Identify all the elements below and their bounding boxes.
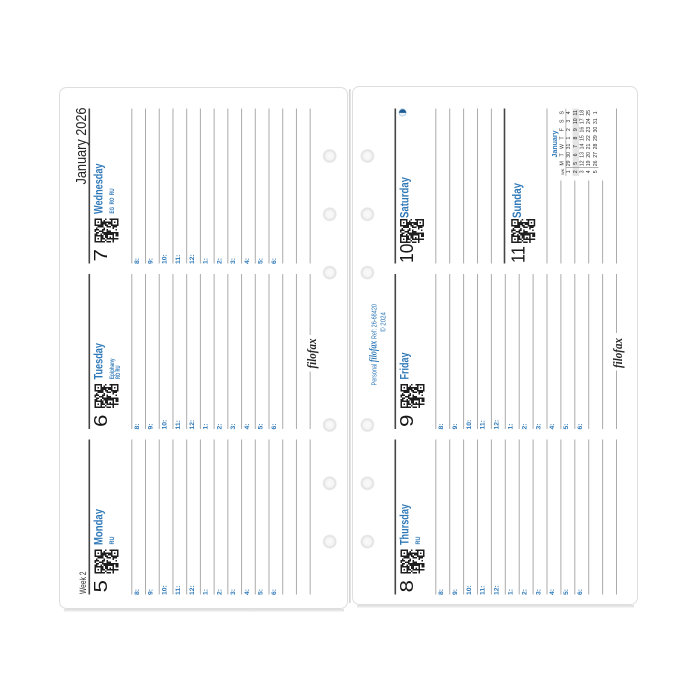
- svg-text:21: 21: [586, 143, 592, 149]
- svg-text:8:: 8:: [438, 589, 445, 595]
- svg-text:8:: 8:: [134, 258, 141, 264]
- svg-text:2:: 2:: [216, 423, 223, 429]
- svg-text:2:: 2:: [216, 589, 223, 595]
- svg-text:10:: 10:: [161, 420, 168, 430]
- svg-text:10:: 10:: [466, 420, 473, 430]
- svg-text:19: 19: [586, 160, 592, 166]
- svg-text:23: 23: [586, 127, 592, 133]
- svg-text:M: M: [559, 161, 565, 165]
- svg-text:3: 3: [580, 170, 586, 173]
- svg-text:W: W: [559, 144, 565, 149]
- svg-text:Sunday: Sunday: [510, 183, 524, 218]
- svg-text:Monday: Monday: [91, 509, 105, 545]
- svg-text:© 2024: © 2024: [380, 312, 388, 332]
- svg-text:1:: 1:: [508, 589, 515, 595]
- svg-text:11:: 11:: [175, 420, 182, 429]
- svg-text:9:: 9:: [452, 423, 459, 429]
- svg-text:4: 4: [586, 170, 592, 173]
- svg-text:24: 24: [586, 118, 592, 124]
- svg-text:9:: 9:: [148, 258, 155, 264]
- svg-text:15: 15: [580, 135, 586, 141]
- svg-text:25: 25: [586, 110, 592, 116]
- svg-text:F: F: [559, 128, 565, 131]
- svg-text:5: 5: [573, 162, 579, 165]
- svg-text:5:: 5:: [257, 258, 264, 264]
- svg-text:Week 2: Week 2: [78, 572, 88, 595]
- svg-text:20: 20: [586, 152, 592, 158]
- svg-text:22: 22: [586, 135, 592, 141]
- svg-text:10: 10: [397, 244, 417, 264]
- svg-text:9:: 9:: [452, 589, 459, 595]
- svg-text:1:: 1:: [203, 423, 210, 429]
- svg-text:2: 2: [566, 128, 572, 131]
- svg-text:14: 14: [580, 143, 586, 149]
- svg-text:7: 7: [573, 145, 579, 148]
- svg-text:RO RU: RO RU: [116, 366, 122, 380]
- svg-text:1:: 1:: [203, 589, 210, 595]
- svg-text:7: 7: [91, 249, 111, 262]
- svg-text:12:: 12:: [494, 420, 501, 430]
- svg-text:4:: 4:: [244, 589, 251, 595]
- svg-text:3:: 3:: [230, 258, 237, 264]
- svg-text:12:: 12:: [189, 420, 196, 430]
- svg-text:1:: 1:: [508, 423, 515, 429]
- svg-text:11: 11: [573, 110, 579, 115]
- svg-text:Wednesday: Wednesday: [91, 163, 105, 214]
- svg-text:S: S: [559, 111, 565, 115]
- svg-text:6:: 6:: [577, 423, 584, 429]
- svg-text:3:: 3:: [535, 589, 542, 595]
- svg-text:RU: RU: [416, 537, 422, 545]
- svg-text:30: 30: [566, 152, 572, 158]
- svg-text:6:: 6:: [271, 423, 278, 429]
- svg-text:S: S: [559, 119, 565, 123]
- svg-text:5:: 5:: [257, 589, 264, 595]
- svg-text:2:: 2:: [521, 589, 528, 595]
- svg-text:26: 26: [593, 160, 599, 166]
- svg-text:1:: 1:: [203, 258, 210, 264]
- svg-text:Tuesday: Tuesday: [91, 343, 105, 380]
- svg-text:Thursday: Thursday: [397, 504, 411, 545]
- svg-text:9: 9: [573, 128, 579, 131]
- svg-text:1: 1: [566, 137, 572, 140]
- svg-text:11:: 11:: [175, 255, 182, 264]
- svg-text:28: 28: [593, 143, 599, 149]
- svg-text:31: 31: [566, 143, 572, 149]
- svg-text:10: 10: [573, 118, 579, 124]
- svg-text:3:: 3:: [230, 589, 237, 595]
- svg-text:11: 11: [508, 246, 528, 263]
- svg-text:5:: 5:: [563, 589, 570, 595]
- svg-text:12: 12: [580, 160, 586, 166]
- svg-text:13: 13: [580, 152, 586, 158]
- svg-text:8: 8: [397, 580, 417, 593]
- svg-text:3:: 3:: [535, 423, 542, 429]
- svg-text:11:: 11:: [175, 586, 182, 595]
- svg-text:10:: 10:: [161, 254, 168, 264]
- svg-text:6:: 6:: [577, 589, 584, 595]
- svg-text:9:: 9:: [148, 589, 155, 595]
- svg-text:9:: 9:: [148, 423, 155, 429]
- svg-text:4: 4: [566, 111, 572, 114]
- svg-text:Friday: Friday: [397, 352, 411, 379]
- svg-text:1: 1: [593, 111, 599, 114]
- svg-text:filofax: filofax: [304, 338, 319, 368]
- svg-text:2:: 2:: [521, 423, 528, 429]
- svg-text:8:: 8:: [438, 423, 445, 429]
- svg-text:16: 16: [580, 127, 586, 133]
- svg-text:6: 6: [91, 415, 111, 428]
- svg-text:8:: 8:: [134, 589, 141, 595]
- svg-text:27: 27: [593, 152, 599, 158]
- svg-text:1: 1: [566, 170, 572, 173]
- svg-text:Saturday: Saturday: [397, 177, 411, 218]
- svg-text:4:: 4:: [549, 423, 556, 429]
- svg-text:29: 29: [566, 160, 572, 166]
- svg-text:5:: 5:: [257, 423, 264, 429]
- svg-text:5: 5: [91, 580, 111, 593]
- svg-text:3:: 3:: [230, 423, 237, 429]
- svg-text:12:: 12:: [189, 585, 196, 595]
- svg-text:10:: 10:: [466, 585, 473, 595]
- svg-text:9: 9: [397, 415, 417, 428]
- svg-text:30: 30: [593, 127, 599, 133]
- svg-text:12:: 12:: [494, 585, 501, 595]
- svg-text:10:: 10:: [161, 585, 168, 595]
- svg-text:2: 2: [573, 170, 579, 173]
- svg-text:8: 8: [573, 137, 579, 140]
- svg-text:January 2026: January 2026: [73, 108, 90, 185]
- svg-text:4:: 4:: [244, 423, 251, 429]
- svg-text:RU: RU: [110, 537, 116, 545]
- svg-text:5:: 5:: [563, 423, 570, 429]
- svg-text:11:: 11:: [480, 586, 487, 595]
- svg-text:filofax: filofax: [610, 338, 625, 368]
- svg-text:11:: 11:: [480, 420, 487, 429]
- svg-text:29: 29: [593, 135, 599, 141]
- svg-text:January: January: [552, 130, 559, 157]
- svg-text:17: 17: [580, 118, 586, 124]
- svg-text:18: 18: [580, 110, 586, 116]
- svg-text:8:: 8:: [134, 423, 141, 429]
- svg-text:6: 6: [573, 153, 579, 156]
- svg-text:2:: 2:: [216, 258, 223, 264]
- svg-text:5: 5: [593, 170, 599, 173]
- svg-text:4:: 4:: [244, 258, 251, 264]
- svg-text:EG RO RU: EG RO RU: [110, 189, 116, 214]
- svg-text:12:: 12:: [189, 254, 196, 264]
- svg-text:WK: WK: [560, 168, 565, 175]
- svg-text:4:: 4:: [549, 589, 556, 595]
- svg-text:6:: 6:: [271, 258, 278, 264]
- svg-text:6:: 6:: [271, 589, 278, 595]
- svg-text:31: 31: [593, 118, 599, 124]
- svg-text:3: 3: [566, 120, 572, 123]
